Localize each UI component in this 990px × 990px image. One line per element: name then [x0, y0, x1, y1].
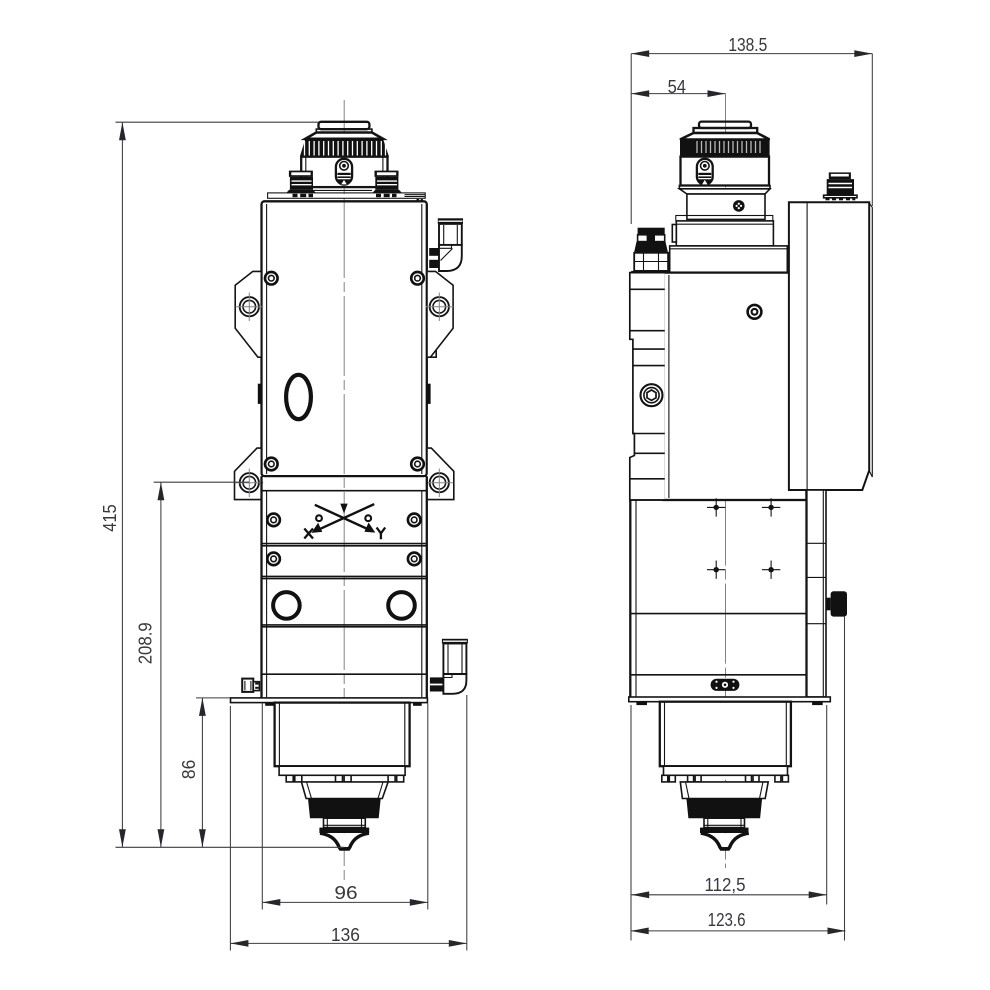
- svg-text:86: 86: [179, 760, 199, 779]
- svg-text:123.6: 123.6: [708, 910, 746, 930]
- svg-text:54: 54: [668, 77, 686, 97]
- svg-text:136: 136: [331, 925, 360, 945]
- svg-text:415: 415: [100, 504, 120, 531]
- svg-text:96: 96: [334, 883, 357, 903]
- svg-text:112,5: 112,5: [705, 875, 746, 895]
- svg-text:208.9: 208.9: [136, 622, 156, 664]
- svg-text:138.5: 138.5: [728, 35, 767, 55]
